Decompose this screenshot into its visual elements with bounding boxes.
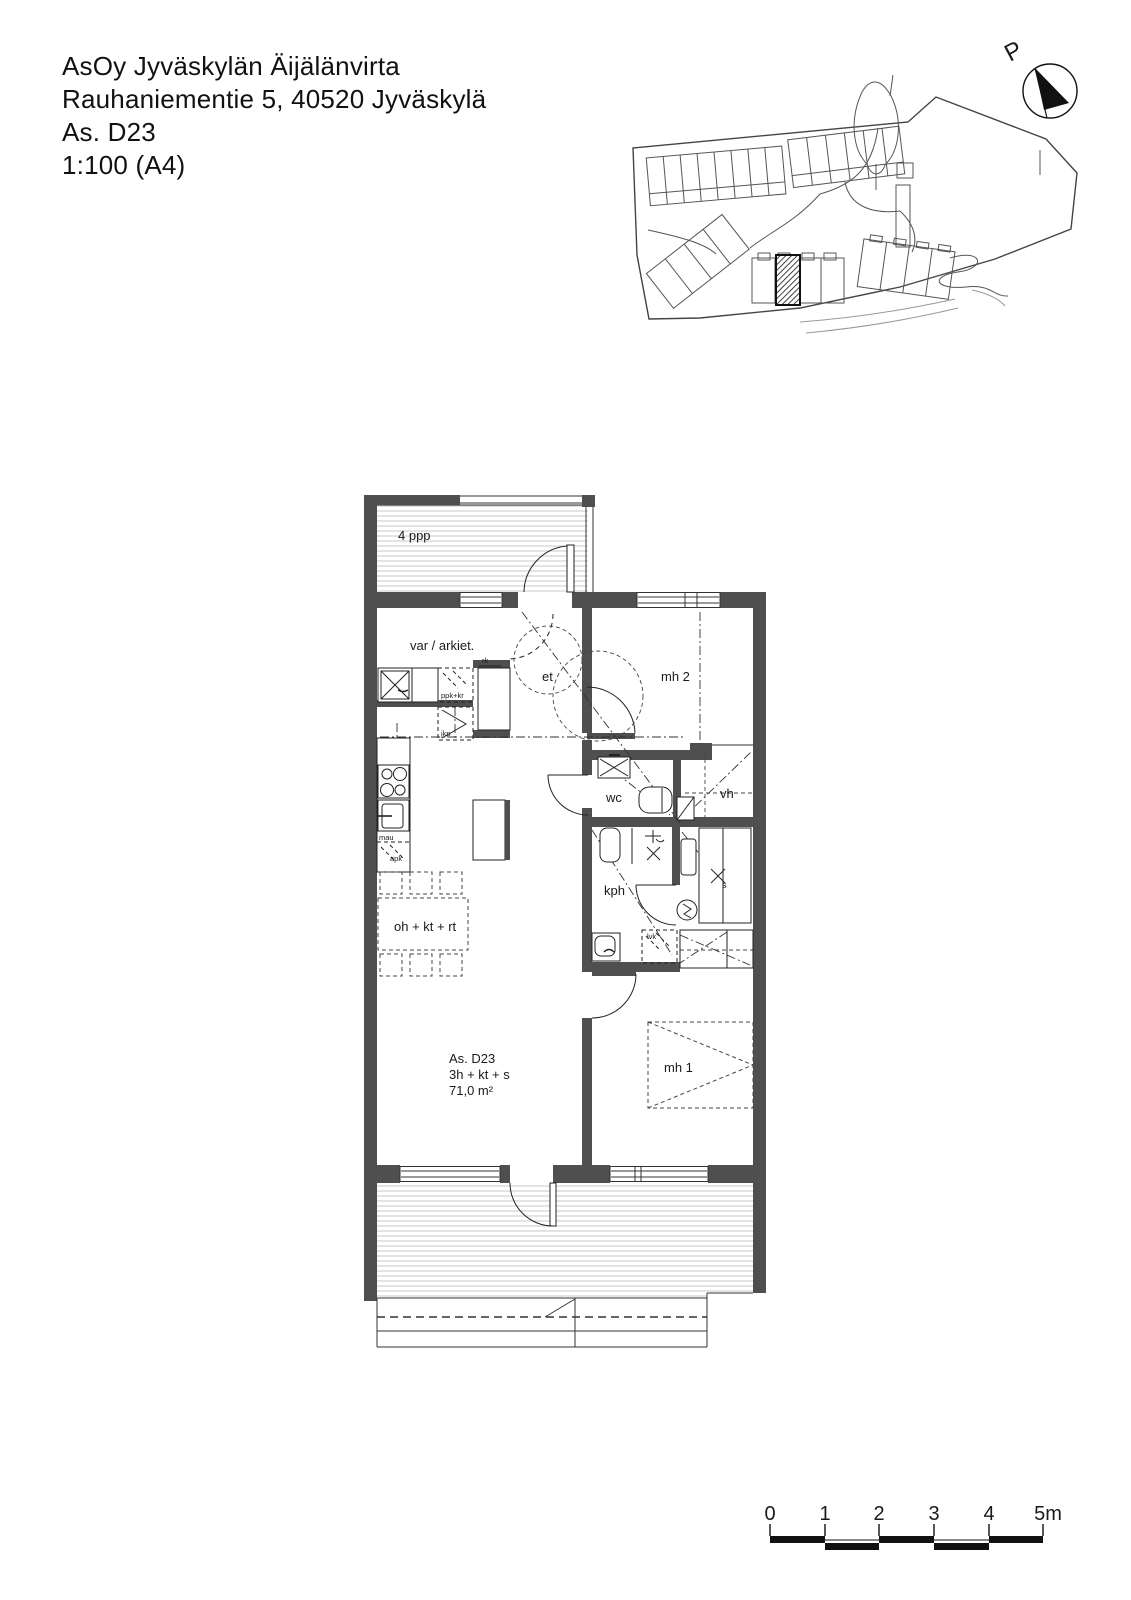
scale-1: 1	[819, 1503, 830, 1525]
label-apartment-id: As. D23	[449, 1051, 495, 1066]
scale-5m: 5m	[1034, 1503, 1062, 1525]
label-dishwasher: apk	[390, 854, 402, 863]
label-living: oh + kt + rt	[394, 919, 457, 934]
scale-bar: 0 1 2 3 4 5m	[764, 1503, 1061, 1550]
window-living	[400, 1167, 500, 1182]
sauna-benches	[699, 828, 751, 923]
label-balcony: 4 ppp	[398, 528, 431, 543]
terrace-deck-right	[707, 1183, 753, 1293]
label-washer-dryer: ppk+kr	[441, 691, 464, 700]
site-boundary	[633, 97, 1077, 319]
window-mh1	[610, 1167, 708, 1182]
site-building-row-2	[788, 126, 905, 187]
label-bedroom2: mh 2	[661, 669, 690, 684]
terrace-deck	[377, 1183, 707, 1298]
sauna-fixtures	[677, 828, 753, 968]
terrace-steps	[377, 1298, 707, 1347]
sauna-door	[636, 885, 676, 925]
label-cabinet: rk	[482, 656, 488, 665]
scale-bar-labels: 0 1 2 3 4 5m	[764, 1503, 1061, 1525]
site-building-row-5	[857, 234, 955, 299]
closet-row	[680, 930, 753, 968]
label-microwave: mau	[379, 833, 394, 842]
floor-plan-sheet: AsOy Jyväskylän Äijälänvirta Rauhaniemen…	[0, 0, 1131, 1600]
label-apartment-area: 71,0 m²	[449, 1083, 494, 1098]
wc-sink	[598, 755, 630, 778]
shower-mixer	[645, 830, 664, 843]
sauna-heater	[681, 839, 696, 875]
site-building-row-3	[646, 214, 749, 308]
bedroom1-door	[592, 971, 636, 1018]
tv-bench	[473, 800, 510, 860]
utility-sink	[378, 668, 438, 702]
north-needle	[1035, 68, 1069, 110]
north-arrow: P	[1000, 36, 1077, 118]
label-storage: var / arkiet.	[410, 638, 474, 653]
shower-seat	[600, 828, 620, 862]
label-water-heater: lvk	[647, 932, 656, 941]
kitchen-sink	[378, 800, 409, 831]
scale-0: 0	[764, 1503, 775, 1525]
site-building-row-1	[646, 146, 786, 206]
label-apartment-layout: 3h + kt + s	[449, 1067, 510, 1082]
plan-drawing: P	[0, 0, 1131, 1600]
window-var	[460, 593, 502, 608]
stove	[378, 765, 409, 798]
label-entry: et	[542, 669, 553, 684]
scale-2: 2	[873, 1503, 884, 1525]
toilet	[639, 787, 672, 813]
hall-cabinet	[478, 666, 510, 730]
scale-3: 3	[928, 1503, 939, 1525]
label-wc: wc	[605, 790, 622, 805]
label-sauna-s: s	[722, 880, 727, 890]
highlighted-unit	[776, 255, 800, 305]
bathroom-basin	[592, 933, 620, 961]
site-building-row-4	[752, 253, 844, 305]
floor-drain-sauna	[677, 900, 697, 920]
apartment-plan: 4 ppp var / arkiet. et mh 2 wc vh kph oh…	[364, 495, 766, 1347]
window-mh2	[637, 593, 720, 608]
floor-drain-shower	[647, 847, 660, 860]
label-bedroom1: mh 1	[664, 1060, 693, 1075]
label-bathroom: kph	[604, 883, 625, 898]
north-label: P	[1000, 36, 1027, 67]
label-fridge: jkp	[440, 729, 451, 738]
turning-circle-2	[553, 651, 643, 741]
label-walkin-closet: vh	[720, 786, 734, 801]
scale-4: 4	[983, 1503, 994, 1525]
tree-symbol	[854, 82, 898, 174]
site-plan	[633, 75, 1077, 333]
